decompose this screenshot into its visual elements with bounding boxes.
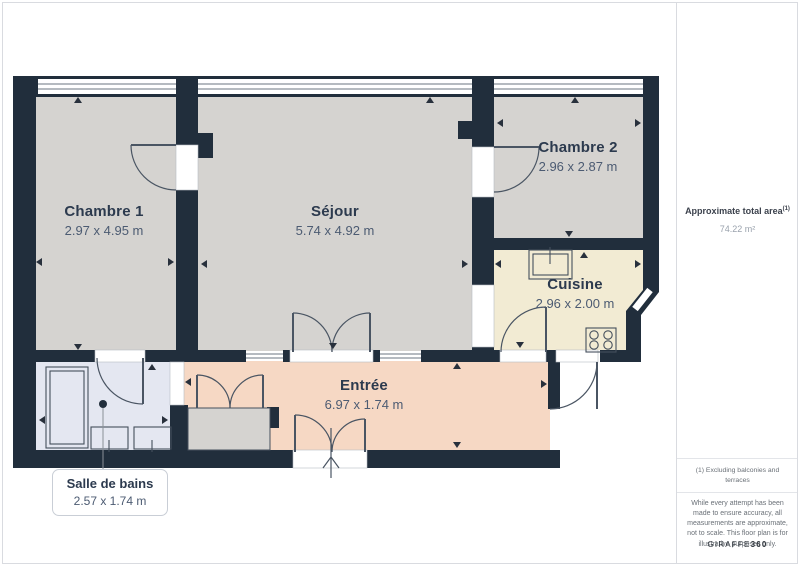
room-label-salle-de-bains: Salle de bains 2.57 x 1.74 m: [52, 469, 168, 516]
glass-panel-right: [380, 351, 421, 361]
total-area-label: Approximate total area(1): [677, 206, 798, 216]
floorplan-page: Chambre 1 2.97 x 4.95 m Séjour 5.74 x 4.…: [0, 0, 800, 566]
room-label-entree: Entrée 6.97 x 1.74 m: [325, 377, 404, 412]
total-area-block: Approximate total area(1) 74.22 m²: [677, 206, 798, 234]
window-chambre-1: [38, 79, 176, 94]
room-label-chambre-2: Chambre 2 2.96 x 2.87 m: [538, 139, 617, 174]
total-area-value: 74.22 m²: [677, 224, 798, 234]
footnote-text: (1) Excluding balconies and terraces: [683, 466, 792, 485]
divider: [677, 458, 798, 459]
room-label-chambre-1: Chambre 1 2.97 x 4.95 m: [64, 203, 143, 238]
window-sejour: [198, 79, 472, 94]
room-label-sejour: Séjour 5.74 x 4.92 m: [296, 203, 375, 238]
glass-panel-left: [246, 351, 283, 361]
info-panel: Approximate total area(1) 74.22 m² (1) E…: [676, 3, 798, 563]
opening-chambre-1: [176, 145, 198, 190]
giraffe360-logo: GIRAFFE360: [677, 540, 798, 549]
opening-sejour-cuisine: [472, 285, 494, 347]
footnote-marker: (1): [783, 206, 790, 212]
opening-cuisine-door: [500, 350, 546, 362]
window-chambre-2: [494, 79, 643, 94]
wardrobe: [188, 408, 270, 450]
room-label-cuisine: Cuisine 2.96 x 2.00 m: [536, 276, 615, 311]
opening-chambre-2: [472, 147, 494, 197]
opening-salle-de-bains: [95, 350, 145, 362]
divider: [677, 492, 798, 493]
opening-bath-passage: [170, 362, 184, 405]
